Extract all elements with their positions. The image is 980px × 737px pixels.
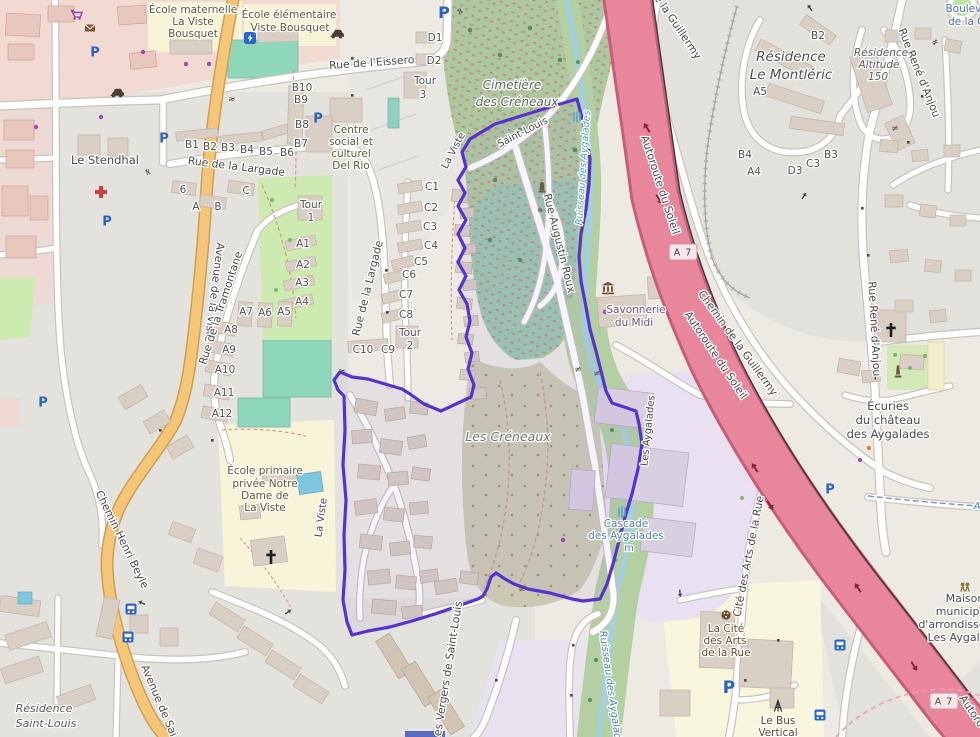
unit-label: A7	[239, 306, 253, 318]
unit-label: C5	[414, 256, 428, 268]
school-label: Bousquet	[168, 28, 218, 40]
school-label: La Viste	[172, 16, 214, 28]
unit-label: A4	[747, 166, 761, 178]
unit-label: C9	[381, 344, 395, 356]
parking-icon: P	[90, 46, 100, 61]
dot-icon	[207, 62, 211, 66]
waterfall-label: m	[624, 543, 634, 554]
unit-label: A10	[215, 364, 236, 376]
parking-icon: P	[313, 112, 323, 127]
unit-label: B2	[811, 30, 825, 42]
bus-icon	[123, 632, 134, 643]
poi-label: d'arrondisse	[918, 618, 980, 631]
unit-label: B1	[185, 139, 199, 151]
unit-label: B6	[280, 147, 294, 159]
unit-label: 1	[308, 212, 315, 224]
unit-label: B7	[294, 138, 308, 150]
parking-icon: P	[438, 3, 450, 22]
unit-label: C1	[425, 181, 439, 193]
unit-label: C4	[424, 240, 438, 252]
poi-label: des Aygalades	[847, 427, 930, 441]
unit-label: A5	[753, 86, 767, 98]
unit-label: B	[214, 201, 221, 213]
poi-label: Del Rio	[332, 160, 369, 172]
edge-label: A	[973, 501, 980, 512]
poi-label: Maison	[946, 592, 980, 605]
unit-label: A2	[296, 259, 310, 271]
bus-icon	[815, 710, 826, 721]
unit-label: A8	[224, 324, 238, 336]
dot-icon	[184, 62, 188, 66]
unit-label: B3	[221, 142, 235, 154]
unit-label: A12	[212, 408, 233, 420]
unit-label: A9	[222, 344, 236, 356]
unit-label: B10	[292, 82, 313, 94]
unit-label: B8	[295, 119, 309, 131]
unit-label: C8	[399, 309, 413, 321]
map-base-layer: PPPPPPPP≠≠≠≠≠≠≠≠≠ A 7A 7 Rue de l'Eisser…	[0, 0, 980, 737]
street-label: de la Ga	[948, 16, 980, 28]
school-label: École élémentaire	[242, 8, 337, 21]
poi-label: social et	[329, 136, 373, 148]
unit-label: A	[192, 201, 200, 213]
unit-label: C7	[399, 289, 413, 301]
place-label: Résidence	[16, 702, 73, 715]
parking-icon: P	[723, 678, 735, 698]
dot-icon	[561, 538, 565, 542]
svg-text:A 7: A 7	[935, 697, 954, 708]
unit-label: 3	[420, 89, 427, 101]
unit-label: B9	[294, 94, 308, 106]
unit-label: B2	[203, 141, 217, 153]
unit-label: D1	[428, 32, 443, 44]
unit-label: Tour	[299, 199, 323, 211]
unit-label: B4	[738, 149, 752, 161]
gate-icon: ≠	[574, 365, 582, 375]
unit-label: A1	[296, 238, 310, 250]
unit-label: B5	[259, 146, 273, 158]
bus-icon	[126, 604, 137, 615]
motorway-shield: A 7	[930, 693, 958, 709]
dot-icon	[867, 446, 871, 450]
poi-label: municipa	[936, 605, 980, 618]
unit-label: Tour	[398, 327, 422, 339]
place-label: 150	[868, 71, 888, 83]
unit-label: A6	[258, 307, 272, 319]
poi-label: La Cité	[708, 623, 744, 635]
unit-label: Tour	[413, 75, 437, 87]
unit-label: D2	[427, 55, 442, 67]
waterfall-label: des Aygalades	[588, 530, 664, 542]
place-label: Résidence	[756, 49, 826, 65]
unit-label: 2	[407, 340, 414, 352]
unit-label: A4	[295, 296, 309, 308]
school-label: privée Notre	[232, 478, 297, 490]
place-label: Le Stendhal	[71, 153, 139, 167]
school-label: La Viste	[244, 502, 286, 514]
dot-icon	[34, 125, 38, 129]
unit-label: C3	[806, 158, 820, 170]
unit-label: A11	[214, 387, 235, 399]
unit-label: B3	[824, 149, 838, 161]
gate-icon: ≠	[593, 369, 601, 379]
poi-label: Les Aygala	[928, 631, 980, 644]
dot-icon	[858, 458, 862, 462]
unit-label: A5	[277, 306, 291, 318]
place-label: Altitude	[857, 59, 899, 71]
poi-label: Le Bus	[761, 715, 796, 727]
street-label: Boulevard	[945, 3, 980, 15]
poi-label: des Arts	[703, 635, 746, 647]
parking-icon: P	[102, 215, 112, 230]
poi-label: Vertical	[758, 727, 797, 737]
unit-label: A3	[295, 277, 309, 289]
area-label: Les Créneaux	[465, 429, 551, 444]
place-label: Le Montléric	[750, 67, 833, 83]
map-canvas[interactable]: PPPPPPPP≠≠≠≠≠≠≠≠≠ A 7A 7 Rue de l'Eisser…	[0, 0, 980, 737]
unit-label: C10	[353, 344, 374, 356]
poi-label: de la Rue	[701, 647, 750, 659]
poi-label: Écuries	[867, 398, 909, 413]
school-label: Dame de	[241, 490, 289, 502]
place-label: Résidence	[854, 47, 908, 59]
parking-icon: P	[825, 483, 835, 498]
school-label: Viste Bousquet	[251, 22, 330, 34]
parking-icon: P	[38, 396, 48, 411]
place-label: Saint-Louis	[16, 717, 77, 730]
unit-label: C2	[424, 202, 438, 214]
school-label: École primaire	[227, 464, 303, 477]
unit-label: C6	[402, 269, 416, 281]
unit-label: C	[242, 185, 249, 197]
school-label: École maternelle	[149, 3, 237, 16]
bus-icon	[835, 640, 846, 651]
palette-icon	[721, 610, 730, 619]
dot-icon	[141, 50, 145, 54]
poi-label: Centre	[333, 124, 368, 136]
gate-icon: ≠	[891, 124, 899, 134]
svg-text:A 7: A 7	[674, 248, 693, 259]
unit-label: C3	[423, 221, 437, 233]
motorway-shield: A 7	[669, 244, 697, 260]
waterfall-label: Cascade	[604, 518, 649, 530]
people-icon	[961, 583, 969, 591]
unit-label: D3	[788, 165, 803, 177]
poi-label: du château	[856, 413, 921, 427]
poi-label: du Midi	[615, 317, 653, 329]
poi-label: Savonnerie	[606, 304, 665, 316]
museum-icon	[602, 282, 615, 294]
cemetery-label: des Créneaux	[476, 95, 560, 109]
poi-label: culturel	[331, 148, 371, 160]
parking-icon: P	[159, 132, 169, 147]
unit-label: 6	[180, 184, 187, 196]
unit-label: B4	[240, 144, 254, 156]
cemetery-label: Cimetière	[483, 78, 542, 92]
dot-icon	[99, 115, 103, 119]
post-icon	[85, 25, 95, 32]
